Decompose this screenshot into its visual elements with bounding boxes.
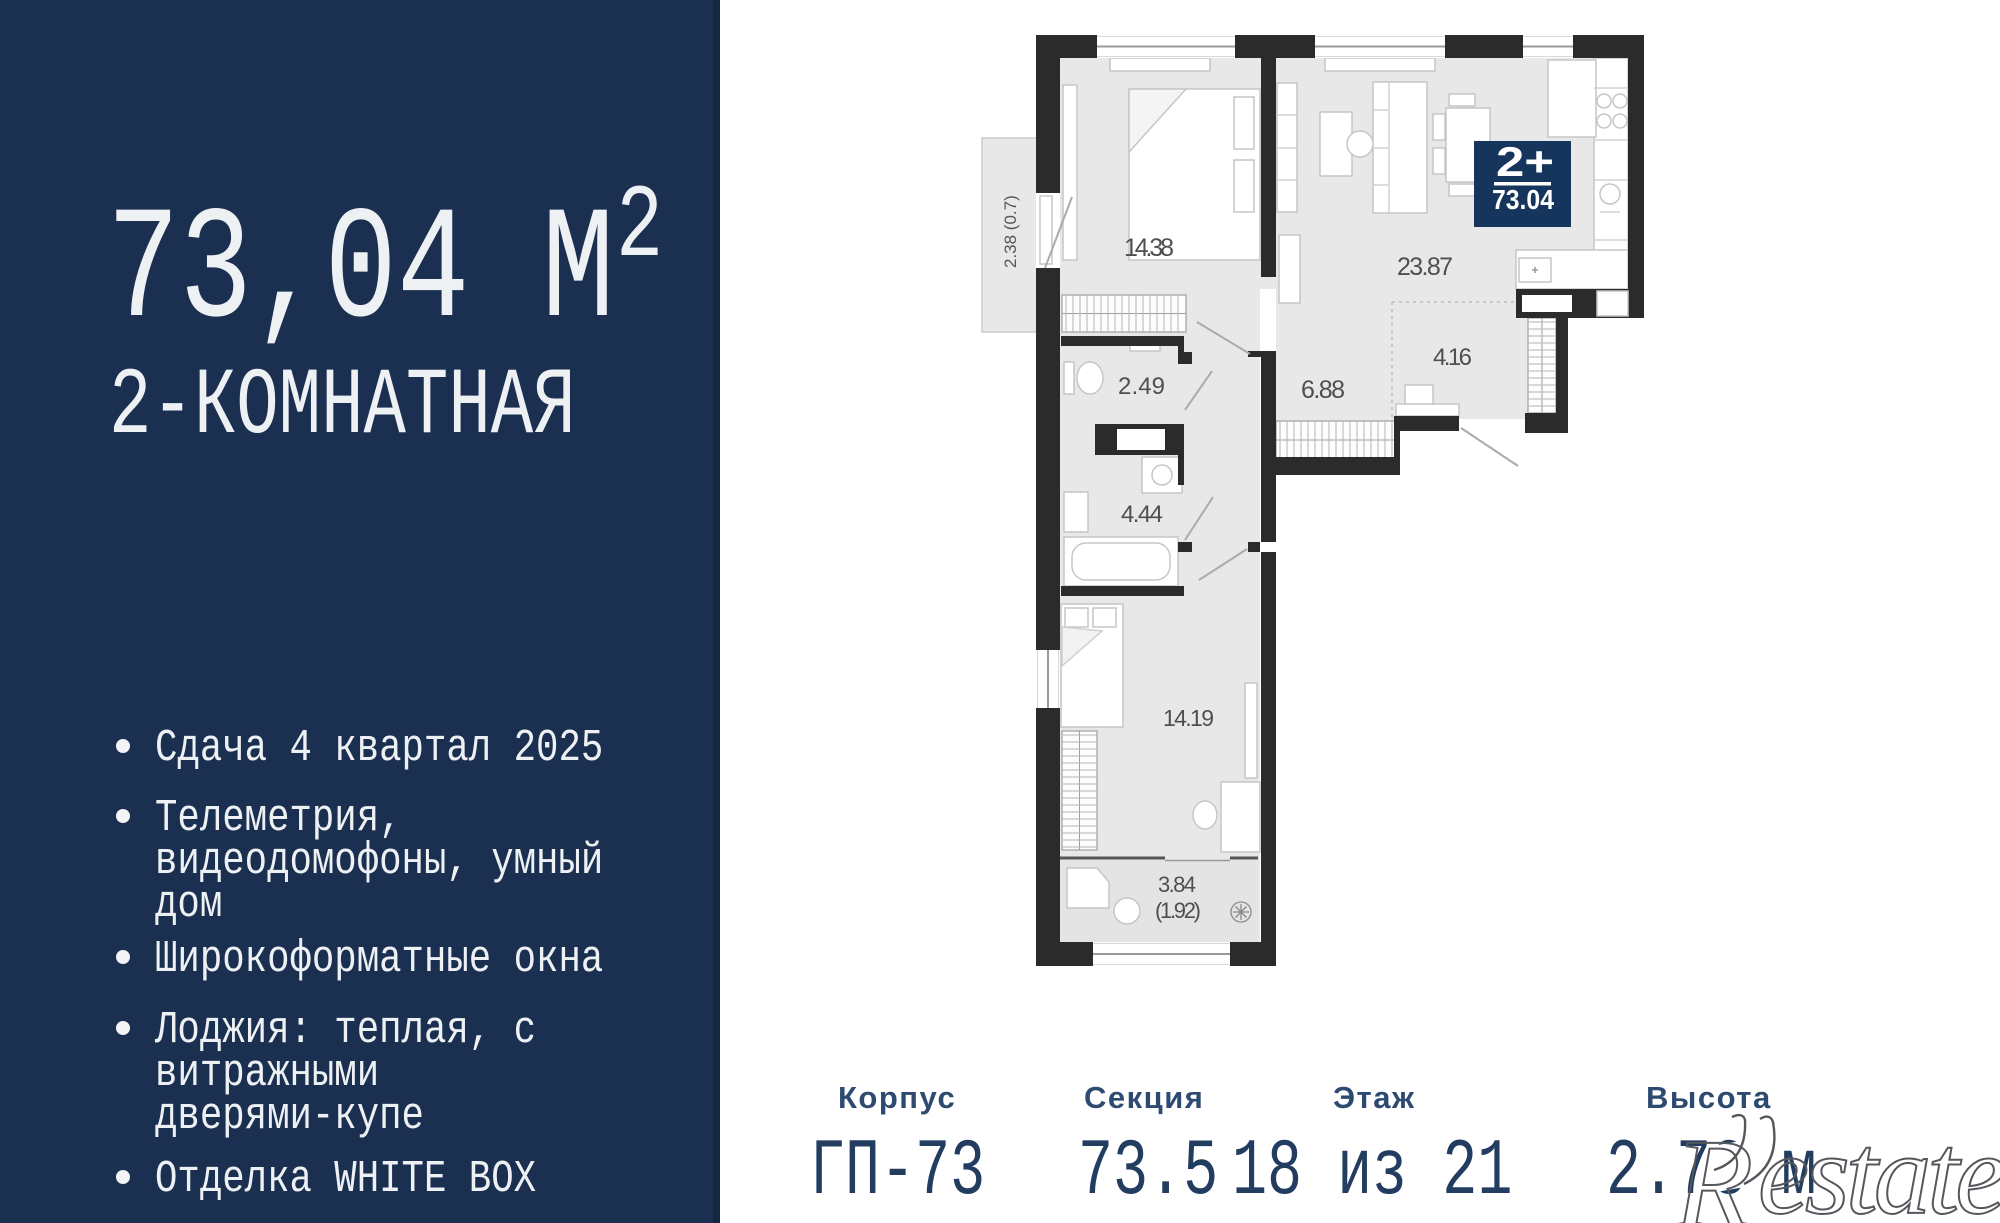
svg-text:estate: estate: [1758, 1111, 2000, 1223]
svg-text:(1.92): (1.92): [1155, 898, 1201, 923]
svg-text:2.38 (0.7): 2.38 (0.7): [1001, 195, 1020, 268]
svg-text:R: R: [1673, 1113, 1753, 1223]
svg-text:23.87: 23.87: [1397, 253, 1453, 281]
svg-text:3.84: 3.84: [1158, 872, 1196, 897]
svg-text:2.49: 2.49: [1118, 373, 1165, 400]
svg-text:14.38: 14.38: [1124, 234, 1174, 262]
svg-text:4.44: 4.44: [1121, 501, 1163, 528]
svg-text:4.16: 4.16: [1433, 344, 1472, 371]
svg-text:2+: 2+: [1496, 138, 1554, 185]
svg-text:14.19: 14.19: [1163, 705, 1214, 731]
svg-text:73.04: 73.04: [1492, 184, 1554, 215]
svg-text:6.88: 6.88: [1301, 376, 1345, 404]
